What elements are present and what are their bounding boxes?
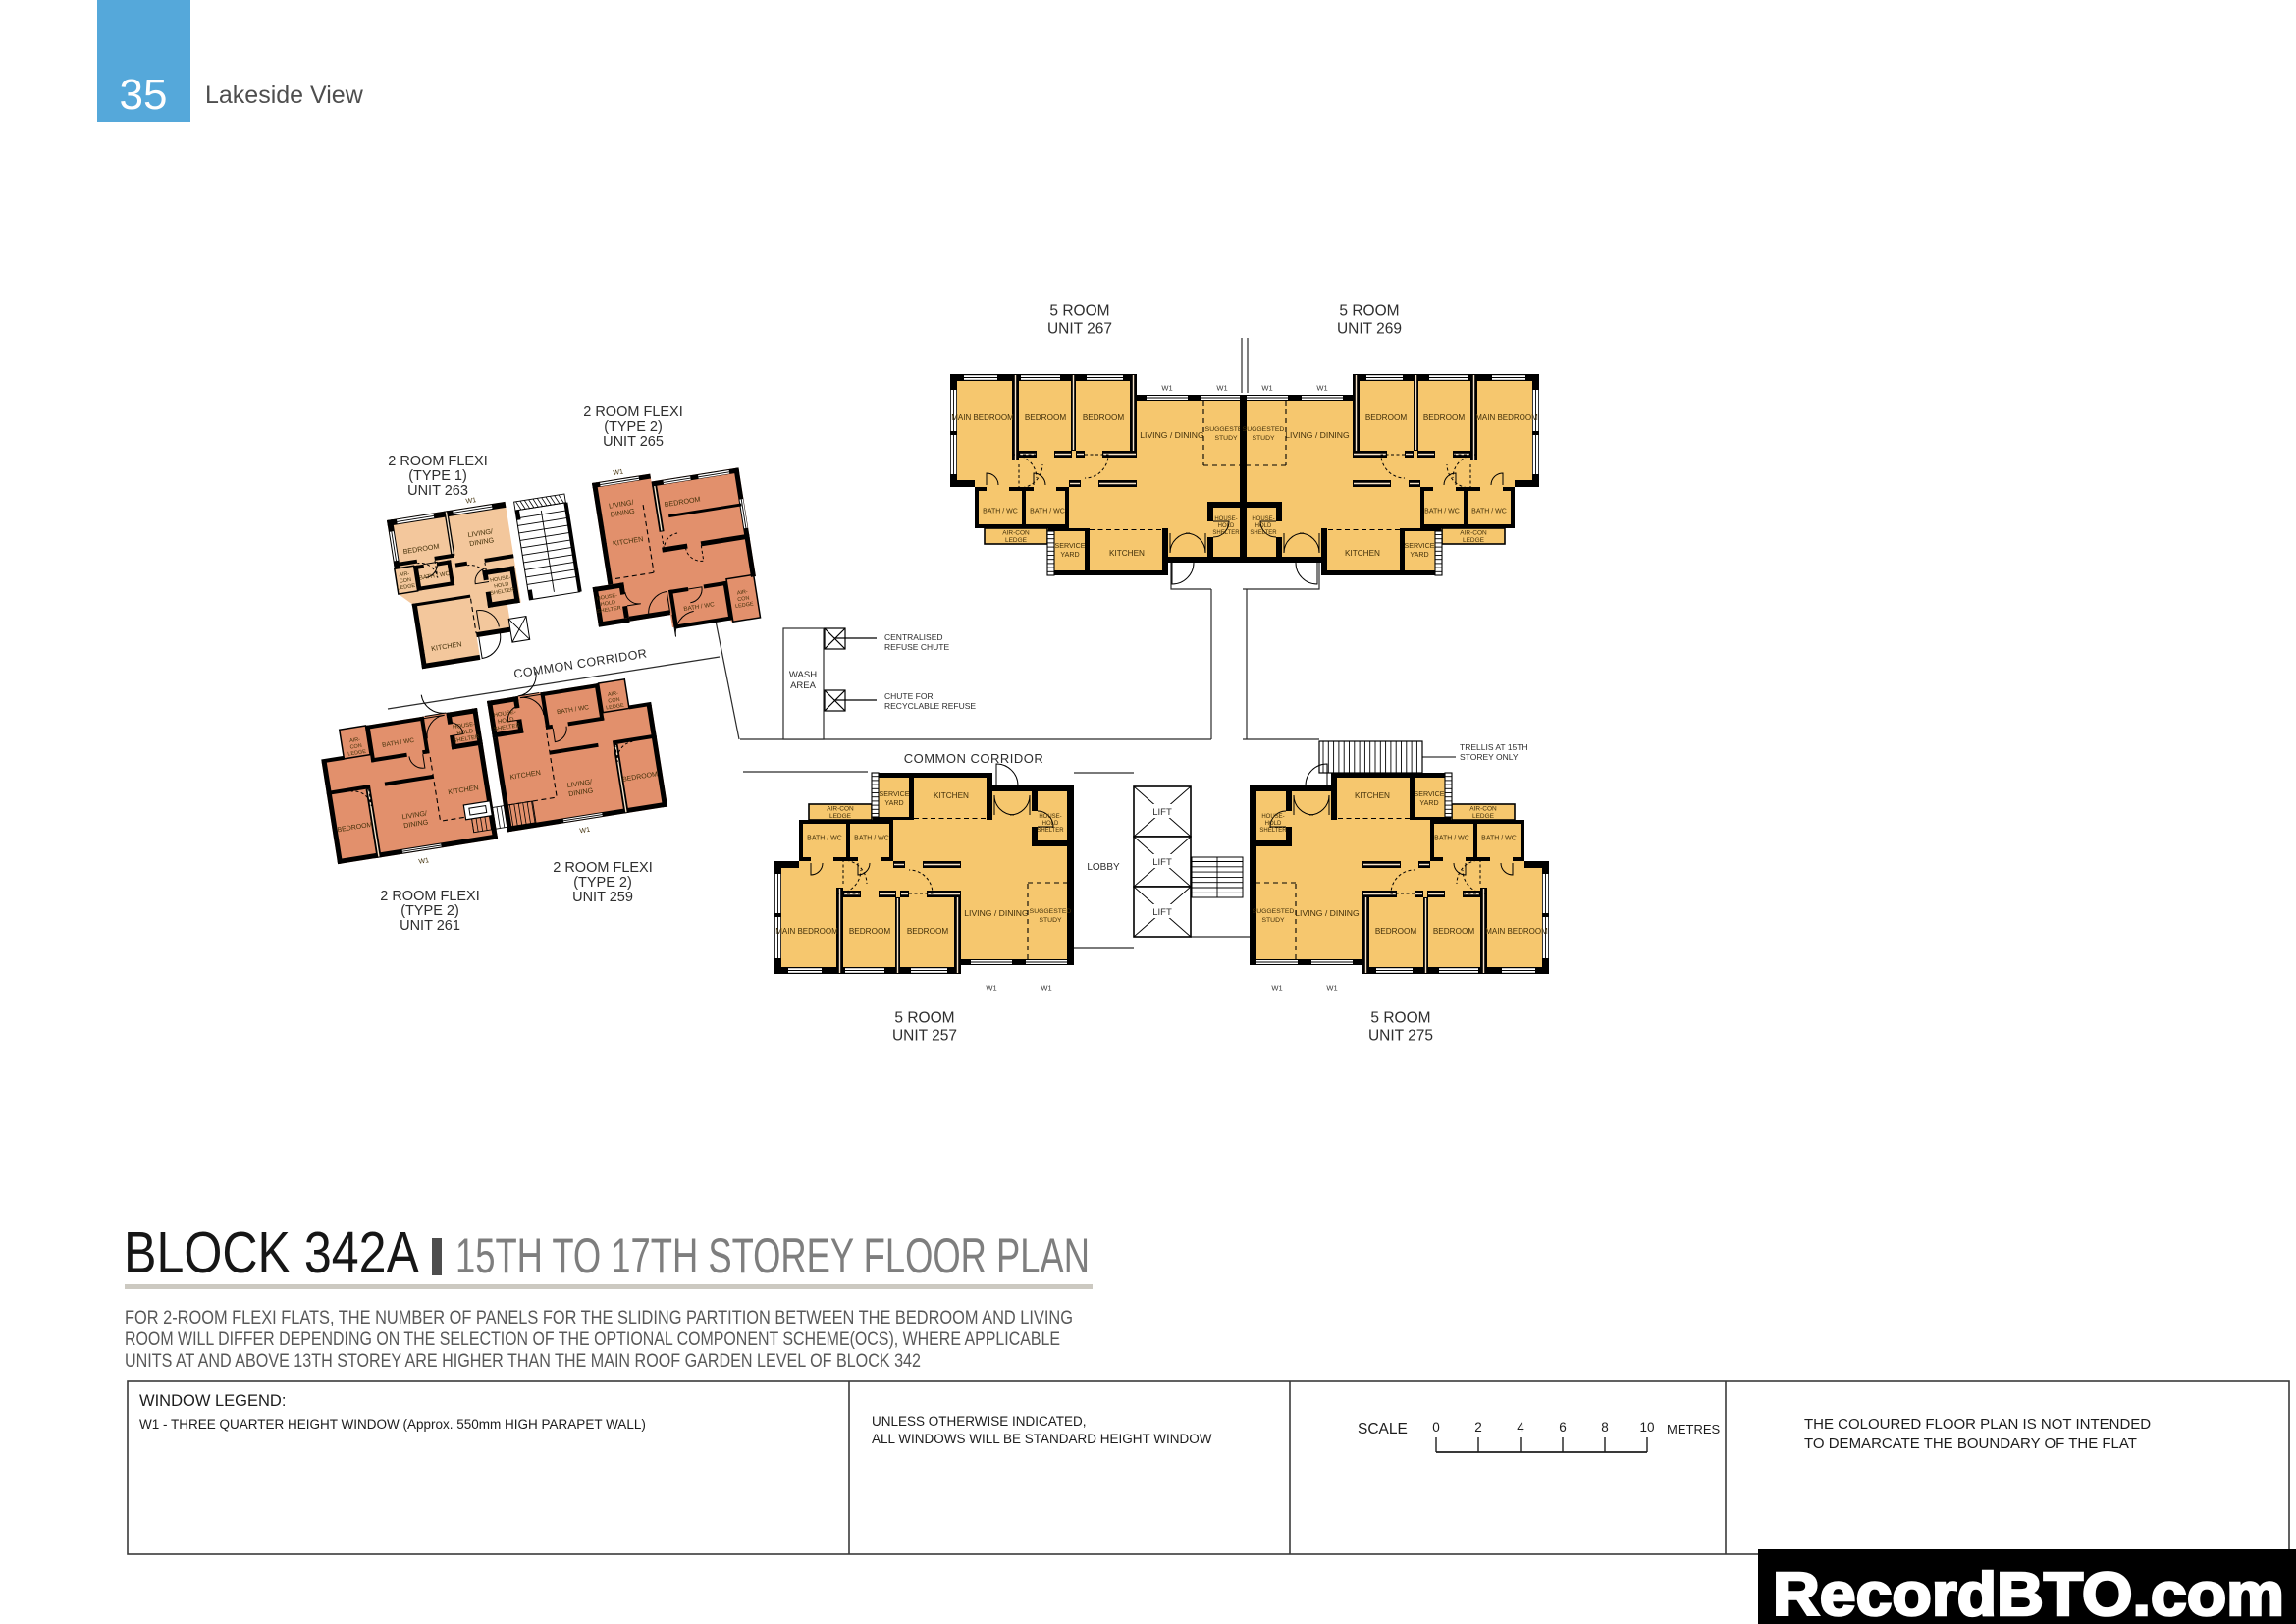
svg-text:COMMON CORRIDOR: COMMON CORRIDOR (904, 751, 1044, 766)
svg-text:LOBBY: LOBBY (1087, 862, 1120, 873)
svg-text:HOUSE-: HOUSE- (1252, 516, 1274, 522)
svg-text:MAIN BEDROOM: MAIN BEDROOM (951, 413, 1014, 422)
svg-text:YARD: YARD (884, 799, 903, 807)
svg-text:2: 2 (1474, 1420, 1482, 1435)
svg-text:2 ROOM FLEXI: 2 ROOM FLEXI (583, 405, 683, 420)
svg-text:35: 35 (120, 71, 168, 119)
svg-text:RECYCLABLE REFUSE: RECYCLABLE REFUSE (884, 701, 976, 711)
svg-text:ROOM WILL DIFFER DEPENDING ON: ROOM WILL DIFFER DEPENDING ON THE SELECT… (125, 1329, 1060, 1350)
svg-text:AIR-CON: AIR-CON (1469, 806, 1497, 813)
svg-text:REFUSE CHUTE: REFUSE CHUTE (884, 642, 949, 652)
svg-text:STUDY: STUDY (1214, 435, 1238, 442)
svg-text:W1: W1 (1161, 384, 1172, 393)
svg-text:WINDOW LEGEND:: WINDOW LEGEND: (139, 1392, 286, 1410)
svg-text:SUGGESTED: SUGGESTED (1243, 426, 1285, 433)
svg-text:HOLD: HOLD (1042, 821, 1059, 827)
svg-text:YARD: YARD (1060, 551, 1079, 559)
svg-text:UNIT 269: UNIT 269 (1337, 321, 1402, 338)
svg-text:MAIN BEDROOM: MAIN BEDROOM (1475, 413, 1538, 422)
svg-text:W1: W1 (1216, 384, 1227, 393)
svg-text:W1: W1 (986, 984, 996, 993)
svg-text:BEDROOM: BEDROOM (1025, 413, 1066, 422)
svg-text:2 ROOM FLEXI: 2 ROOM FLEXI (380, 889, 480, 904)
svg-text:(TYPE 1): (TYPE 1) (408, 468, 467, 484)
svg-text:THE COLOURED FLOOR PLAN IS NOT: THE COLOURED FLOOR PLAN IS NOT INTENDED (1804, 1416, 2151, 1433)
svg-text:RecordBTO.com: RecordBTO.com (1773, 1561, 2284, 1624)
svg-text:LEDGE: LEDGE (829, 813, 852, 820)
svg-text:BLOCK 342A: BLOCK 342A (124, 1220, 420, 1285)
svg-text:BEDROOM: BEDROOM (1375, 927, 1416, 936)
svg-text:LEDGE: LEDGE (1005, 537, 1028, 544)
svg-text:10: 10 (1639, 1420, 1654, 1435)
svg-text:8: 8 (1601, 1420, 1609, 1435)
svg-text:(TYPE 2): (TYPE 2) (604, 419, 663, 435)
svg-text:LIFT: LIFT (1152, 857, 1172, 868)
svg-text:LIFT: LIFT (1152, 807, 1172, 818)
svg-text:BEDROOM: BEDROOM (1423, 413, 1465, 422)
svg-text:BATH / WC: BATH / WC (854, 836, 889, 842)
svg-text:TRELLIS AT 15TH: TRELLIS AT 15TH (1460, 742, 1528, 752)
svg-text:UNIT 257: UNIT 257 (892, 1028, 957, 1045)
svg-text:CENTRALISED: CENTRALISED (884, 632, 943, 642)
svg-text:6: 6 (1559, 1420, 1567, 1435)
svg-text:BEDROOM: BEDROOM (1433, 927, 1474, 936)
svg-text:STUDY: STUDY (1261, 917, 1285, 924)
svg-text:BATH / WC: BATH / WC (1030, 509, 1065, 515)
svg-text:BATH / WC: BATH / WC (1424, 509, 1460, 515)
svg-text:SHELTER: SHELTER (1259, 828, 1287, 834)
svg-text:KITCHEN: KITCHEN (1109, 549, 1145, 558)
svg-text:LEDGE: LEDGE (1463, 537, 1485, 544)
svg-text:4: 4 (1517, 1420, 1524, 1435)
svg-text:KITCHEN: KITCHEN (934, 791, 969, 800)
svg-text:SHELTER: SHELTER (1037, 828, 1064, 834)
svg-text:YARD: YARD (1410, 551, 1428, 559)
svg-text:LIVING / DINING: LIVING / DINING (964, 908, 1029, 918)
svg-text:SUGGESTED: SUGGESTED (1253, 908, 1295, 915)
svg-text:BATH / WC: BATH / WC (983, 509, 1018, 515)
svg-text:AIR-CON: AIR-CON (1460, 530, 1487, 537)
svg-text:UNIT 265: UNIT 265 (603, 434, 664, 450)
svg-text:LEDGE: LEDGE (1472, 813, 1495, 820)
svg-text:5 ROOM: 5 ROOM (1370, 1010, 1430, 1027)
svg-text:5 ROOM: 5 ROOM (894, 1010, 954, 1027)
svg-text:MAIN BEDROOM: MAIN BEDROOM (1485, 927, 1548, 936)
svg-text:W1: W1 (1326, 984, 1337, 993)
svg-text:SCALE: SCALE (1358, 1421, 1408, 1437)
svg-text:KITCHEN: KITCHEN (1355, 791, 1390, 800)
svg-text:YARD: YARD (1419, 799, 1438, 807)
svg-text:W1: W1 (1041, 984, 1051, 993)
svg-text:SERVICE: SERVICE (1054, 542, 1085, 550)
svg-text:UNITS AT AND ABOVE 13TH STOREY: UNITS AT AND ABOVE 13TH STOREY ARE HIGHE… (125, 1351, 921, 1372)
svg-text:5 ROOM: 5 ROOM (1339, 303, 1399, 320)
svg-text:HOLD: HOLD (1218, 523, 1235, 529)
svg-text:LIVING / DINING: LIVING / DINING (1285, 430, 1350, 440)
svg-text:W1: W1 (1316, 384, 1327, 393)
svg-text:SERVICE: SERVICE (1404, 542, 1434, 550)
svg-text:STUDY: STUDY (1039, 917, 1062, 924)
svg-text:STOREY ONLY: STOREY ONLY (1460, 752, 1519, 762)
svg-text:BEDROOM: BEDROOM (1365, 413, 1407, 422)
svg-text:LIVING / DINING: LIVING / DINING (1295, 908, 1360, 918)
svg-text:W1 - THREE QUARTER HEIGHT WIND: W1 - THREE QUARTER HEIGHT WINDOW (Approx… (139, 1417, 646, 1432)
svg-text:TO DEMARCATE THE BOUNDARY OF T: TO DEMARCATE THE BOUNDARY OF THE FLAT (1804, 1435, 2137, 1452)
svg-text:SHELTER: SHELTER (1250, 530, 1277, 536)
svg-text:CHUTE FOR: CHUTE FOR (884, 691, 934, 701)
svg-text:HOUSE-: HOUSE- (1214, 516, 1237, 522)
svg-text:SERVICE: SERVICE (879, 790, 909, 798)
svg-text:W1: W1 (1271, 984, 1282, 993)
svg-text:AIR-CON: AIR-CON (827, 806, 854, 813)
svg-text:Lakeside View: Lakeside View (205, 81, 364, 109)
svg-text:(TYPE 2): (TYPE 2) (573, 875, 632, 891)
svg-text:UNIT 261: UNIT 261 (400, 918, 460, 934)
svg-text:SHELTER: SHELTER (1212, 530, 1240, 536)
svg-text:2 ROOM FLEXI: 2 ROOM FLEXI (388, 454, 488, 469)
svg-text:UNIT 275: UNIT 275 (1368, 1028, 1433, 1045)
svg-text:BATH / WC: BATH / WC (1434, 836, 1469, 842)
svg-text:HOUSE-: HOUSE- (1261, 814, 1284, 820)
svg-text:KITCHEN: KITCHEN (1345, 549, 1380, 558)
svg-text:METRES: METRES (1667, 1422, 1721, 1436)
svg-text:0: 0 (1432, 1420, 1440, 1435)
svg-text:BATH / WC: BATH / WC (1471, 509, 1507, 515)
svg-text:UNIT 263: UNIT 263 (407, 483, 468, 499)
svg-text:(TYPE 2): (TYPE 2) (400, 903, 459, 919)
svg-text:AIR-CON: AIR-CON (1002, 530, 1030, 537)
svg-text:BEDROOM: BEDROOM (1083, 413, 1124, 422)
svg-text:MAIN BEDROOM: MAIN BEDROOM (775, 927, 838, 936)
svg-text:15TH TO 17TH STOREY FLOOR PLAN: 15TH TO 17TH STOREY FLOOR PLAN (455, 1228, 1090, 1283)
svg-text:HOUSE-: HOUSE- (1039, 814, 1061, 820)
svg-text:AREA: AREA (790, 680, 817, 691)
svg-text:UNIT 259: UNIT 259 (572, 890, 633, 905)
svg-text:SERVICE: SERVICE (1414, 790, 1444, 798)
svg-text:UNLESS OTHERWISE INDICATED,: UNLESS OTHERWISE INDICATED, (872, 1414, 1087, 1429)
svg-text:ALL WINDOWS WILL BE STANDARD H: ALL WINDOWS WILL BE STANDARD HEIGHT WIND… (872, 1432, 1212, 1446)
svg-text:2 ROOM FLEXI: 2 ROOM FLEXI (553, 860, 653, 876)
svg-text:BATH / WC: BATH / WC (807, 836, 842, 842)
svg-text:W1: W1 (1261, 384, 1272, 393)
svg-text:HOLD: HOLD (1265, 821, 1282, 827)
svg-text:BEDROOM: BEDROOM (907, 927, 948, 936)
svg-text:LIFT: LIFT (1152, 907, 1172, 918)
svg-text:5 ROOM: 5 ROOM (1049, 303, 1109, 320)
svg-text:STUDY: STUDY (1252, 435, 1275, 442)
svg-text:BEDROOM: BEDROOM (849, 927, 890, 936)
svg-text:FOR 2-ROOM FLEXI FLATS, THE NU: FOR 2-ROOM FLEXI FLATS, THE NUMBER OF PA… (125, 1308, 1073, 1328)
svg-text:SUGGESTED: SUGGESTED (1030, 908, 1072, 915)
svg-text:LIVING / DINING: LIVING / DINING (1140, 430, 1204, 440)
svg-text:BATH / WC: BATH / WC (1481, 836, 1517, 842)
svg-text:HOLD: HOLD (1255, 523, 1272, 529)
svg-text:WASH: WASH (789, 670, 817, 680)
svg-text:UNIT 267: UNIT 267 (1047, 321, 1112, 338)
